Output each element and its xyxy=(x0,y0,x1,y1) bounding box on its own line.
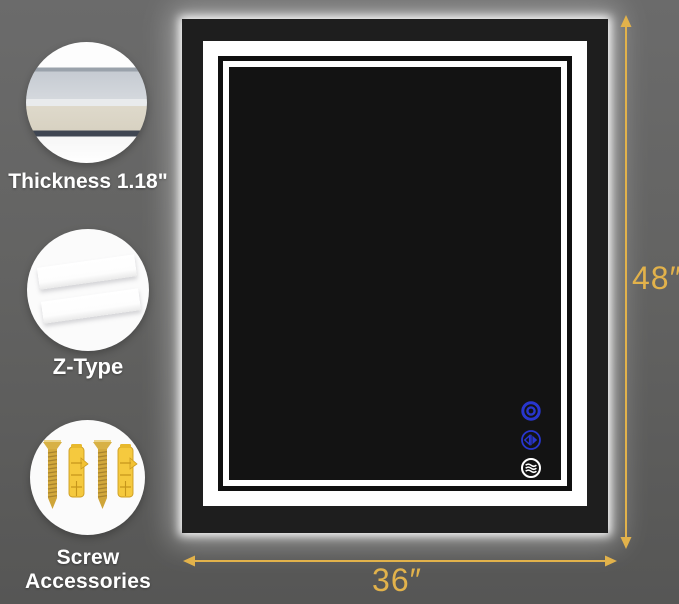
mirror-inner-edge xyxy=(223,61,567,486)
light-power-button xyxy=(520,400,542,422)
led-mirror xyxy=(182,19,608,533)
dimmer-icon xyxy=(520,429,542,451)
screw-accessories-label: Screw Accessories xyxy=(0,546,178,594)
power-icon xyxy=(520,400,542,422)
touch-controls xyxy=(520,400,542,490)
z-bracket-slat xyxy=(37,254,137,289)
z-type-bracket-photo xyxy=(27,229,149,351)
wall-anchor-icon xyxy=(69,444,88,497)
thickness-label: Thickness 1.18" xyxy=(0,170,178,194)
width-dimension-label: 36″ xyxy=(332,562,462,599)
product-image: Thickness 1.18" Z-Type xyxy=(0,0,679,604)
screw-icon xyxy=(93,440,112,509)
mirror-inner-frame xyxy=(218,56,572,491)
defog-icon xyxy=(520,457,542,479)
screws-and-anchors-icon xyxy=(30,420,145,535)
dimmer-button xyxy=(520,429,542,451)
screw-icon xyxy=(43,440,62,509)
wall-anchor-icon xyxy=(118,444,137,497)
mirror-glass xyxy=(229,67,561,480)
z-type-label: Z-Type xyxy=(0,354,178,380)
height-dimension-label: 48″ xyxy=(632,260,679,297)
z-bracket-slat xyxy=(41,288,141,323)
screw-accessories-photo xyxy=(30,420,145,535)
thickness-profile-photo xyxy=(26,42,147,163)
defog-button xyxy=(520,457,542,479)
